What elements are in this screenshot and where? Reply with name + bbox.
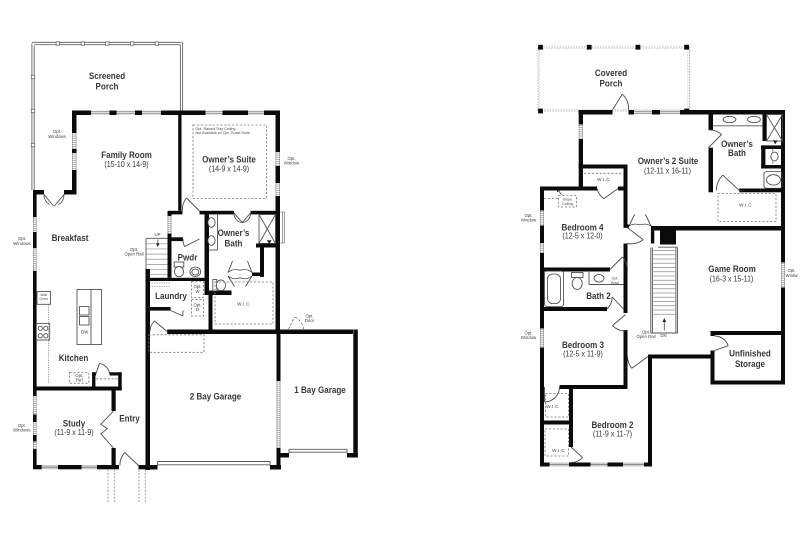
svg-text:Porch: Porch [96, 82, 119, 93]
svg-text:Storage: Storage [735, 359, 765, 370]
svg-text:W.I.C: W.I.C [552, 448, 565, 453]
svg-text:(12-5 x 11-9): (12-5 x 11-9) [563, 350, 603, 359]
svg-text:Kitchen: Kitchen [59, 353, 89, 364]
svg-text:Window: Window [521, 218, 537, 223]
svg-text:Open Rail: Open Rail [636, 334, 655, 339]
svg-text:W.I.C: W.I.C [237, 301, 250, 306]
svg-text:W.I.C: W.I.C [546, 404, 559, 409]
svg-text:Breakfast: Breakfast [52, 233, 89, 244]
svg-text:Laundry: Laundry [155, 291, 187, 302]
svg-text:Windows: Windows [13, 428, 30, 433]
svg-text:W: W [195, 289, 200, 294]
svg-text:Oven: Oven [39, 297, 48, 301]
svg-text:DW: DW [81, 330, 89, 335]
svg-text:(14-9 x 14-9): (14-9 x 14-9) [209, 164, 250, 173]
svg-text:(12-11 x 16-11): (12-11 x 16-11) [644, 166, 691, 175]
svg-text:Window: Window [521, 335, 537, 340]
svg-text:(15-10 x 14-9): (15-10 x 14-9) [104, 160, 148, 169]
svg-text:1 Bay Garage: 1 Bay Garage [294, 385, 346, 396]
svg-text:W.I.C: W.I.C [597, 177, 610, 182]
svg-text:Wndw: Wndw [786, 273, 799, 278]
svg-text:Bath: Bath [728, 148, 746, 159]
svg-text:(11-9 x 11-7): (11-9 x 11-7) [593, 430, 633, 439]
svg-text:(11-9 x 11-9): (11-9 x 11-9) [54, 428, 94, 437]
svg-text:Entry: Entry [119, 414, 140, 425]
svg-text:(12-5 x 12-0): (12-5 x 12-0) [562, 232, 603, 241]
svg-text:Ceiling: Ceiling [562, 202, 573, 206]
svg-text:Opt.: Opt. [612, 276, 619, 280]
svg-text:UP: UP [155, 232, 161, 237]
svg-text:Pwdr: Pwdr [178, 253, 198, 264]
svg-text:Window: Window [284, 160, 300, 165]
svg-text:Windows: Windows [13, 241, 30, 246]
svg-text:Bath: Bath [225, 238, 243, 249]
svg-text:Not Available w/ Opt. Guest Su: Not Available w/ Opt. Guest Suite [196, 131, 250, 135]
svg-text:Bath 2: Bath 2 [586, 291, 611, 302]
svg-text:Open Rail: Open Rail [124, 251, 143, 256]
svg-text:Slope: Slope [563, 198, 572, 202]
svg-text:Ref: Ref [76, 378, 83, 383]
svg-text:DN: DN [660, 333, 666, 338]
svg-text:Porch: Porch [600, 79, 623, 90]
svg-text:W.I.C: W.I.C [739, 202, 752, 207]
svg-text:(16-3 x 15-11): (16-3 x 15-11) [710, 275, 754, 284]
svg-text:Bowl: Bowl [611, 281, 619, 285]
svg-text:2 Bay Garage: 2 Bay Garage [190, 392, 242, 403]
svg-text:D: D [196, 307, 199, 312]
svg-text:Windows: Windows [48, 134, 65, 139]
svg-text:Door: Door [305, 318, 315, 323]
